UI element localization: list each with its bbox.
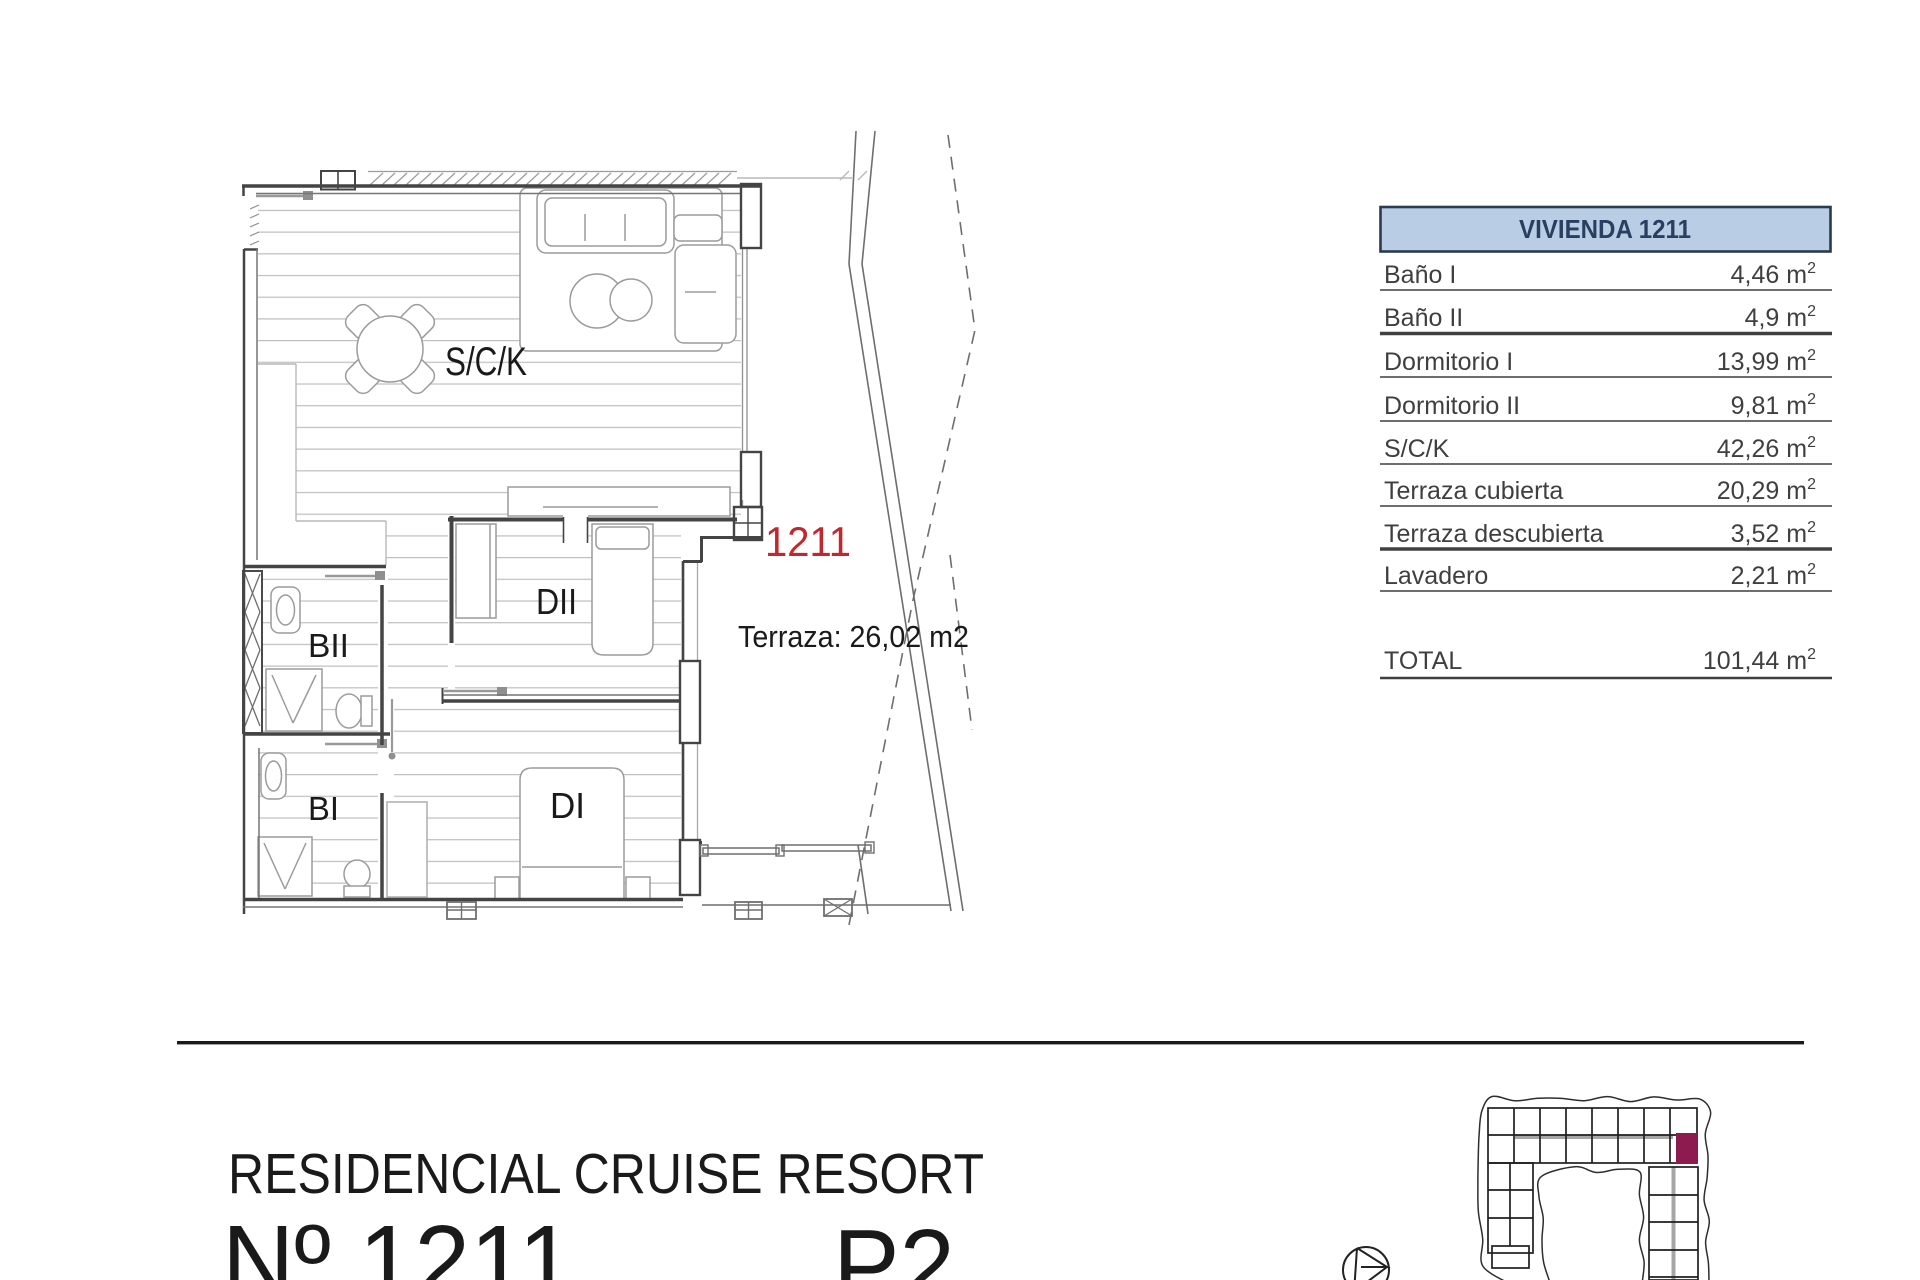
svg-text:Baño I: Baño I [1384, 261, 1456, 289]
svg-text:Terraza: 26,02 m2: Terraza: 26,02 m2 [738, 619, 969, 654]
svg-text:Terraza descubierta: Terraza descubierta [1384, 520, 1604, 548]
svg-text:20,29 m2: 20,29 m2 [1717, 476, 1816, 505]
svg-text:4,46 m2: 4,46 m2 [1731, 260, 1816, 289]
svg-text:DI: DI [550, 785, 585, 826]
svg-text:Nº 1211: Nº 1211 [222, 1204, 574, 1280]
svg-text:4,9 m2: 4,9 m2 [1745, 303, 1817, 332]
svg-text:Dormitorio II: Dormitorio II [1384, 392, 1520, 420]
svg-text:Dormitorio I: Dormitorio I [1384, 348, 1513, 376]
svg-text:Lavadero: Lavadero [1384, 562, 1488, 590]
svg-text:TOTAL: TOTAL [1384, 647, 1462, 675]
svg-text:3,52 m2: 3,52 m2 [1731, 519, 1816, 548]
svg-text:VIVIENDA 1211: VIVIENDA 1211 [1519, 214, 1691, 244]
svg-text:Terraza cubierta: Terraza cubierta [1384, 477, 1563, 505]
svg-text:S/C/K: S/C/K [445, 340, 527, 384]
svg-text:BII: BII [308, 627, 349, 664]
svg-text:9,81 m2: 9,81 m2 [1731, 391, 1816, 420]
svg-text:P2: P2 [833, 1208, 955, 1280]
svg-text:42,26 m2: 42,26 m2 [1717, 434, 1816, 463]
svg-text:BI: BI [308, 790, 339, 827]
svg-text:13,99 m2: 13,99 m2 [1717, 347, 1816, 376]
svg-text:S/C/K: S/C/K [1384, 435, 1450, 463]
svg-text:DII: DII [536, 581, 577, 622]
svg-text:2,21 m2: 2,21 m2 [1731, 561, 1816, 590]
svg-text:RESIDENCIAL CRUISE RESORT: RESIDENCIAL CRUISE RESORT [228, 1142, 984, 1206]
svg-text:101,44 m2: 101,44 m2 [1703, 646, 1816, 675]
svg-text:Baño II: Baño II [1384, 304, 1463, 332]
svg-text:1211: 1211 [765, 518, 851, 565]
